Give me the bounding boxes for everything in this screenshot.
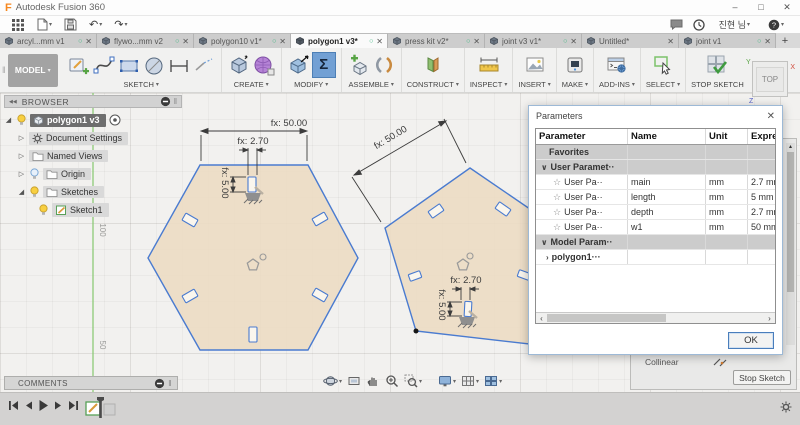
param-unit: mm [706,220,748,234]
window-maximize-button[interactable]: □ [748,2,774,13]
app-menu-button[interactable] [8,17,28,32]
visibility-bulb-icon[interactable] [38,204,49,216]
table-row-param-length[interactable]: ☆User Pa·· length mm 5 mm [536,190,775,205]
param-name[interactable]: w1 [628,220,706,234]
grid-label-50: 50 [98,341,107,350]
document-cube-icon [586,36,596,46]
create-dropdown-icon: ▾ [266,81,269,88]
favorite-star-icon[interactable]: ☆ [553,222,561,233]
tab-label: flywo...mm v2 [114,37,172,46]
browser-item-label: Sketches [61,187,98,197]
change-parameters-button[interactable]: Σ [312,52,336,78]
tab-label: polygon1 v3* [308,37,366,46]
tab-status-icon: ○ [757,38,761,45]
grid-dropdown-icon: ▾ [476,378,479,385]
document-tab-bar: arcyl...mm v1 ○ ✕ flywo...mm v2 ○ ✕ poly… [0,33,800,48]
scripts-addins-icon [606,54,628,76]
workspace-label: MODEL [15,65,46,75]
tab-close-icon[interactable]: ✕ [376,37,383,46]
comments-bar[interactable]: COMMENTS ‖ [4,376,178,390]
circle-icon [143,54,165,76]
document-cube-icon [4,36,14,46]
viewports-icon [484,374,498,388]
create-sketch-icon [68,54,90,76]
insert-group-label[interactable]: INSERT▾ [518,80,550,89]
parameters-dialog: Parameters ✕ Parameter Name Unit Express… [528,105,783,355]
addins-group-label[interactable]: ADD-INS▾ [599,80,635,89]
browser-item-label: Origin [61,169,85,179]
tab-arcyl[interactable]: arcyl...mm v1 ○ ✕ [0,33,97,48]
tab-label: Untitled* [599,37,664,46]
chevron-down-icon[interactable]: ∨ [541,163,548,172]
user-name: 진현 님 [719,18,746,31]
toolbar-grip: ‖ [0,65,8,75]
viewports-dropdown-icon: ▾ [499,378,502,385]
favorite-star-icon[interactable]: ☆ [553,207,561,218]
pan-button[interactable] [365,373,381,389]
title-bar: F Autodesk Fusion 360 – □ ✕ [0,0,800,16]
workspace-dropdown-icon: ▾ [48,67,51,74]
spline-button[interactable] [92,52,116,78]
axis-x-label: X [790,64,795,71]
hexagon-slot [249,327,257,342]
rectangle-icon [118,54,140,76]
chevron-down-icon[interactable]: ∨ [541,238,548,247]
tab-label: press kit v2* [405,37,463,46]
timeline-sketch-feature-icon [84,396,118,420]
column-unit: Unit [706,129,748,144]
construct-plane-icon [422,54,444,76]
redo-icon: ↷ [114,18,123,31]
sketch-dimension-button[interactable] [167,52,191,78]
table-row-param-w1[interactable]: ☆User Pa·· w1 mm 50 mm [536,220,775,235]
insert-group: INSERT▾ [513,48,556,92]
press-pull-icon [288,54,310,76]
ruler-icon [478,54,500,76]
tab-polygon1-active[interactable]: polygon1 v3* ○ ✕ [291,33,388,48]
browser-header[interactable]: ◀◀ BROWSER ‖ [4,95,182,108]
scroll-up-icon[interactable]: ▴ [786,143,795,150]
axis-z-label: Z [749,98,753,105]
table-horizontal-scrollbar[interactable]: ‹ › [536,312,775,323]
spline-icon [93,54,115,76]
redo-button[interactable]: ↷ ▾ [110,17,131,32]
circle-button[interactable] [142,52,166,78]
browser-item-sketch1[interactable]: Sketch1 [4,201,182,219]
modify-dropdown-icon: ▾ [325,81,328,88]
column-parameter: Parameter [536,129,628,144]
param-name[interactable]: length [628,190,706,204]
param-unit: mm [706,190,748,204]
collinear-constraint-icon [713,356,727,368]
modify-group: Σ MODIFY▾ [282,48,342,92]
rectangle-button[interactable] [117,52,141,78]
tab-label: joint v3 v1* [502,37,560,46]
orbit-dropdown-icon: ▾ [339,378,342,385]
tab-label: joint v1 [696,37,754,46]
fusion-logo-icon: F [5,2,12,14]
tab-label: arcyl...mm v1 [17,37,75,46]
zoom-window-dropdown-icon: ▾ [419,378,422,385]
table-row-user-parameters[interactable]: ∨User Paramet·· [536,160,775,175]
table-header-row: Parameter Name Unit Expression [536,129,775,145]
timeline-step-back-button[interactable] [24,400,33,411]
image-icon [524,54,546,76]
inspect-group: INSPECT▾ [465,48,514,92]
folder-icon [32,151,44,161]
app-title: Autodesk Fusion 360 [16,2,105,13]
pentagon-slot-width-dim-label: fx: 2.70 [450,275,481,286]
create-group-label[interactable]: CREATE▾ [234,80,269,89]
folder-icon [46,169,58,179]
sketch-dropdown-icon: ▾ [156,81,159,88]
panel-grip-icon: ‖ [174,97,177,106]
make-group: MAKE▾ [557,48,594,92]
save-icon [64,18,77,31]
select-cursor-icon [652,54,674,76]
browser-panel: ◀◀ BROWSER ‖ ◢ polygon1 v3 [4,95,182,219]
browser-item-label: Document Settings [46,133,122,143]
window-minimize-button[interactable]: – [722,2,748,13]
printer-icon [564,54,586,76]
axis-y-label: Y [746,59,751,66]
ok-button[interactable]: OK [728,332,774,349]
clock-icon [693,19,705,31]
tab-polygon10[interactable]: polygon10 v1* ○ ✕ [194,33,291,48]
document-cube-icon [489,36,499,46]
gear-icon [32,133,43,144]
sketch-icon [55,204,67,216]
quick-access-toolbar: ▾ ↶ ▾ ↷ ▾ 진현 님 ▾ [0,16,800,33]
table-row-param-main[interactable]: ☆User Pa·· main mm 2.7 mm [536,175,775,190]
dialog-close-icon[interactable]: ✕ [767,111,775,122]
select-dropdown-icon: ▾ [677,81,680,88]
pentagon-fixed-point [414,329,419,334]
select-group-label[interactable]: SELECT▾ [646,80,680,89]
new-tab-button[interactable]: + [776,33,794,48]
grid-layout-button[interactable]: ▾ [460,373,480,389]
tab-press-kit[interactable]: press kit v2* ○ ✕ [388,33,485,48]
document-cube-icon [392,36,402,46]
param-name[interactable]: depth [628,205,706,219]
table-row-model-parameters[interactable]: ∨Model Param·· [536,235,775,250]
modify-group-label[interactable]: MODIFY▾ [294,80,328,89]
tab-close-icon[interactable]: ✕ [279,37,286,46]
param-expression[interactable]: 5 mm [748,190,775,204]
timeline-skip-end-button[interactable] [68,400,79,411]
box-icon [228,54,250,76]
pentagon-edge-dim-label: fx: 50.00 [372,124,409,152]
param-unit: mm [706,205,748,219]
document-cube-icon [683,36,693,46]
trim-button[interactable] [192,52,216,78]
notifications-button[interactable] [670,19,683,30]
stop-sketch-icon [705,53,729,77]
help-icon: ? [768,19,780,31]
component-cube-icon [33,115,44,126]
create-group: CREATE▾ [222,48,282,92]
param-expression[interactable]: 2.7 mm [748,175,775,189]
grid-menu-icon [12,19,24,31]
tab-close-icon[interactable]: ✕ [570,37,577,46]
document-cube-icon [295,36,305,46]
tab-joint-v1[interactable]: joint v1 ○ ✕ [679,33,776,48]
new-component-button[interactable] [347,52,371,78]
undo-icon: ↶ [89,18,98,31]
save-button[interactable] [60,17,81,32]
select-group: SELECT▾ [641,48,686,92]
stop-sketch-button[interactable] [705,52,729,78]
table-row-param-depth[interactable]: ☆User Pa·· depth mm 2.7 mm [536,205,775,220]
file-dropdown-icon: ▾ [49,21,52,28]
browser-title: BROWSER [22,97,69,107]
tab-flywo[interactable]: flywo...mm v2 ○ ✕ [97,33,194,48]
tab-close-icon[interactable]: ✕ [764,37,771,46]
inspect-group-label[interactable]: INSPECT▾ [470,80,508,89]
collapsed-icon[interactable]: ▷ [17,134,26,142]
favorite-star-icon[interactable]: ☆ [553,177,561,188]
grid-label-100: 100 [98,223,107,237]
dialog-title-bar[interactable]: Parameters ✕ [529,106,782,126]
pan-hand-icon [366,374,380,388]
new-body-button[interactable] [227,52,251,78]
addins-dropdown-icon: ▾ [632,81,635,88]
window-close-button[interactable]: ✕ [774,2,800,13]
palette-option-collinear[interactable]: Collinear [645,356,727,368]
scroll-thumb[interactable] [547,314,666,322]
timeline-bar [0,392,800,425]
insert-dropdown-icon: ▾ [548,81,551,88]
tab-close-icon[interactable]: ✕ [473,37,480,46]
display-dropdown-icon: ▾ [453,378,456,385]
visibility-bulb-icon[interactable] [29,186,40,198]
browser-item-label: Named Views [47,151,102,161]
panel-minimize-icon[interactable] [154,378,165,389]
assemble-group-label[interactable]: ASSEMBLE▾ [348,80,393,89]
measure-button[interactable] [477,52,501,78]
table-row-polygon1[interactable]: ›polygon1··· [536,250,775,265]
favorite-star-icon[interactable]: ☆ [553,192,561,203]
browser-item-document-settings[interactable]: ▷ Document Settings [4,129,182,147]
make-dropdown-icon: ▾ [585,81,588,88]
viewcube-face-top[interactable]: TOP [756,67,784,92]
browser-item-label: Sketch1 [70,205,103,215]
chevron-right-icon[interactable]: › [546,253,549,262]
comment-bubble-icon [670,19,683,30]
param-expression[interactable]: 2.7 mm [748,205,775,219]
parameters-table: Parameter Name Unit Expression Favorites… [535,128,776,324]
display-settings-button[interactable]: ▾ [437,373,457,389]
param-name[interactable]: main [628,175,706,189]
panel-minimize-icon[interactable] [160,96,171,107]
display-settings-icon [438,374,452,388]
sigma-icon: Σ [319,56,328,73]
dialog-title: Parameters [536,111,583,121]
param-unit: mm [706,175,748,189]
zoom-window-icon [404,374,418,388]
hexagon-slot-height-dim-label: fx: 5.00 [219,167,230,198]
timeline-step-forward-button[interactable] [54,400,63,411]
pentagon-slot-height-dim-label: fx: 5.00 [436,289,447,320]
visibility-bulb-icon[interactable] [16,114,27,126]
design-canvas[interactable]: 100 50 fx: 50.00 [0,93,800,392]
insert-image-button[interactable] [523,52,547,78]
navigation-bar: ▾ ▾ ▾ ▾ [322,372,503,390]
make-button[interactable] [563,52,587,78]
comments-label: COMMENTS [18,379,68,388]
stop-sketch-group: STOP SKETCH [686,48,749,92]
construct-group: CONSTRUCT▾ [402,48,465,92]
collapsed-icon[interactable]: ▷ [17,152,26,160]
stop-sketch-label: STOP SKETCH [691,80,744,89]
construct-group-label[interactable]: CONSTRUCT▾ [407,80,459,89]
file-icon [36,18,48,31]
tab-status-icon: ○ [175,38,179,45]
timeline-settings-button[interactable] [780,401,792,413]
table-row-favorites[interactable]: Favorites [536,145,775,160]
select-button[interactable] [651,52,675,78]
create-sketch-button[interactable] [67,52,91,78]
tab-status-icon: ○ [466,38,470,45]
fusion360-window: F Autodesk Fusion 360 – □ ✕ ▾ ↶ ▾ [0,0,800,425]
dimension-icon [168,54,190,76]
zoom-icon [385,374,399,388]
document-cube-icon [101,36,111,46]
pentagon-slot [464,301,472,316]
column-name: Name [628,129,706,144]
form-sphere-icon [253,54,275,76]
joint-button[interactable] [372,52,396,78]
document-cube-icon [198,36,208,46]
tab-label: polygon10 v1* [211,37,269,46]
inspect-dropdown-icon: ▾ [504,81,507,88]
timeline-play-button[interactable] [38,399,49,412]
hexagon-width-dim-label: fx: 50.00 [271,118,307,129]
zoom-button[interactable] [384,373,400,389]
viewcube[interactable]: TOP X Y Z [752,61,788,97]
make-group-label[interactable]: MAKE▾ [562,80,588,89]
undo-button[interactable]: ↶ ▾ [85,17,106,32]
browser-item-label: polygon1 v3 [47,115,100,125]
visibility-bulb-off-icon[interactable] [29,168,40,180]
palette-stop-sketch-button[interactable]: Stop Sketch [733,370,791,385]
construct-dropdown-icon: ▾ [456,81,459,88]
scroll-right-icon[interactable]: › [764,314,775,323]
orbit-button[interactable]: ▾ [322,373,343,389]
tab-untitled[interactable]: Untitled* ✕ [582,33,679,48]
gear-icon [780,401,792,413]
svg-text:?: ? [772,20,776,29]
tab-status-icon: ○ [563,38,567,45]
look-at-button[interactable] [346,373,362,389]
addins-button[interactable] [605,52,629,78]
tab-close-icon[interactable]: ✕ [182,37,189,46]
browser-item-sketches[interactable]: ◢ Sketches [4,183,182,201]
tab-status-icon: ○ [78,38,82,45]
timeline-skip-start-button[interactable] [8,400,19,411]
collapsed-icon[interactable]: ▷ [17,170,26,178]
expand-icon[interactable]: ◢ [17,188,26,196]
orbit-icon [323,374,338,388]
assemble-group: ASSEMBLE▾ [342,48,402,92]
job-status-button[interactable] [693,19,705,31]
hexagon-slot [248,177,256,192]
tab-status-icon: ○ [369,38,373,45]
folder-icon [46,187,58,197]
assemble-dropdown-icon: ▾ [391,81,394,88]
redo-dropdown-icon: ▾ [124,21,127,28]
grid-layout-icon [461,374,475,388]
look-at-icon [347,374,361,388]
expand-icon[interactable]: ◢ [4,116,13,124]
user-dropdown-icon: ▾ [747,21,750,28]
palette-scrollbar[interactable]: ▴ [786,143,795,345]
collinear-label: Collinear [645,357,679,367]
activate-radio-icon[interactable] [109,114,121,126]
param-expression[interactable]: 50 mm [748,220,775,234]
tab-status-icon: ○ [272,38,276,45]
sketch-group: SKETCH▾ [62,48,222,92]
user-account-button[interactable]: 진현 님 ▾ [715,17,754,32]
collapse-panel-icon[interactable]: ◀◀ [9,99,17,105]
help-button[interactable]: ? ▾ [764,17,788,32]
timeline-feature-sketch1[interactable] [84,396,118,420]
addins-group: ADD-INS▾ [594,48,641,92]
tab-close-icon[interactable]: ✕ [667,37,674,46]
panel-grip-icon: ‖ [168,379,172,388]
sketch-group-label[interactable]: SKETCH▾ [124,80,159,89]
create-form-button[interactable] [252,52,276,78]
zoom-window-button[interactable]: ▾ [403,373,423,389]
joint-icon [373,54,395,76]
new-component-icon [348,54,370,76]
tab-close-icon[interactable]: ✕ [85,37,92,46]
tab-joint-v3[interactable]: joint v3 v1* ○ ✕ [485,33,582,48]
workspace-selector[interactable]: MODEL ▾ [8,54,58,87]
help-dropdown-icon: ▾ [781,21,784,28]
browser-item-named-views[interactable]: ▷ Named Views [4,147,182,165]
undo-dropdown-icon: ▾ [99,21,102,28]
ribbon-toolbar: ‖ MODEL ▾ SKETCH▾ CREATE▾ [0,48,800,93]
scroll-left-icon[interactable]: ‹ [536,314,547,323]
browser-item-origin[interactable]: ▷ Origin [4,165,182,183]
browser-item-polygon1[interactable]: ◢ polygon1 v3 [4,111,182,129]
press-pull-button[interactable] [287,52,311,78]
file-menu-button[interactable]: ▾ [32,17,56,32]
column-expression: Expression [748,129,775,144]
construct-plane-button[interactable] [421,52,445,78]
hexagon-slot-width-dim-label: fx: 2.70 [237,136,268,147]
trim-icon [193,54,215,76]
viewports-button[interactable]: ▾ [483,373,503,389]
palette-scroll-thumb[interactable] [787,152,794,292]
